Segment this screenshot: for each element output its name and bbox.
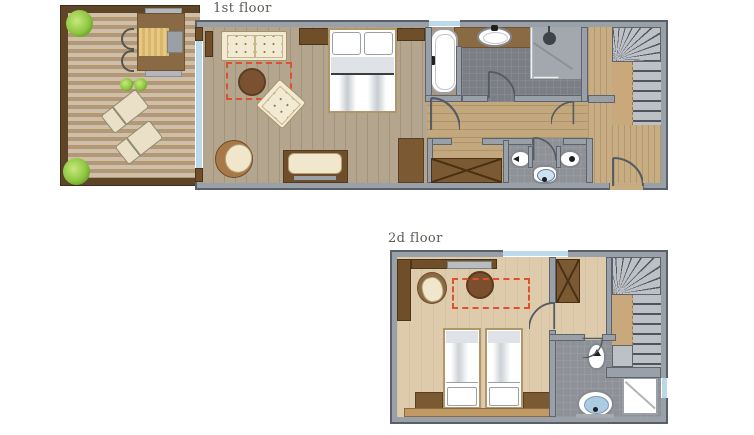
plant-icon: [66, 10, 93, 37]
entry-door: [611, 157, 643, 187]
window-jamb: [195, 27, 203, 41]
shower-glass: [533, 76, 559, 79]
bedroom-door-2f: [529, 302, 556, 330]
bed-duvet: [331, 73, 394, 111]
tv-shelf: [447, 261, 492, 269]
shower-floor: [532, 27, 581, 79]
stairs-straight-flight-2f: [633, 295, 661, 367]
window-jamb: [195, 168, 203, 182]
wall: [462, 95, 488, 102]
corridor-door: [551, 101, 575, 125]
bathroom-door-2f: [582, 337, 603, 358]
wall: [556, 146, 561, 168]
first-floor-label: 1st floor: [213, 1, 272, 16]
bench-cushion: [288, 153, 342, 174]
pillow: [332, 32, 361, 55]
shower-tray-2f: [622, 377, 658, 415]
basin-drain-icon: [593, 407, 598, 412]
bidet-arrow-icon: [513, 156, 519, 162]
wall: [588, 95, 615, 103]
bedroom-shelf-left: [397, 259, 411, 321]
wall: [549, 330, 556, 417]
second-floor-label: 2d floor: [388, 231, 443, 246]
wall: [456, 46, 462, 96]
bed-duvet-2f: [446, 343, 478, 383]
toilet-drain-icon: [569, 156, 575, 162]
coffee-table: [238, 68, 266, 96]
bathroom-door: [487, 71, 515, 99]
bed-sheet: [331, 57, 394, 73]
sofa: [221, 31, 287, 61]
headboard-console-left: [299, 28, 330, 45]
stairs-lower-landing-2f: [612, 345, 633, 367]
wall: [606, 367, 661, 378]
bathroom-window-2f: [661, 378, 668, 398]
closet-wardrobe: [431, 158, 502, 183]
wall: [606, 257, 612, 340]
wc-door: [532, 137, 556, 161]
stairs-winder: [612, 27, 661, 62]
shower-head-icon: [543, 32, 556, 45]
floor-plan-canvas: 1st floor: [0, 0, 754, 435]
bed-duvet-2f: [488, 343, 520, 383]
wardrobe-2f: [556, 259, 580, 303]
stairs-wood-landing: [612, 62, 633, 125]
wall: [503, 140, 509, 183]
table-tray: [167, 31, 183, 53]
bath-mat: [576, 414, 614, 418]
rug-outline-2f: [452, 278, 530, 309]
bed-fold-band: [446, 331, 478, 343]
shower-glass: [530, 27, 533, 79]
plant-icon: [63, 158, 90, 185]
basin-faucet-icon: [491, 25, 498, 31]
pillow: [489, 387, 519, 406]
table-end-cap: [145, 70, 182, 77]
bed-foot-strip: [404, 408, 552, 417]
bathroom-window: [429, 20, 460, 27]
stairs-winder-2f: [612, 257, 661, 295]
wc-basin-drain-icon: [542, 177, 547, 182]
nightstand: [415, 392, 443, 409]
bedroom-window-2f: [503, 250, 568, 257]
headboard-console-right: [397, 28, 425, 41]
wall: [549, 334, 585, 341]
plant-icon: [120, 78, 133, 91]
armchair-2f: [417, 272, 447, 304]
wall: [586, 138, 593, 183]
living-room-door: [429, 97, 460, 131]
bed-fold-band: [488, 331, 520, 343]
wall-console: [205, 31, 213, 57]
nightstand: [523, 392, 550, 409]
stairs-straight-flight: [633, 62, 661, 125]
wall: [602, 334, 616, 341]
bench-rail: [294, 176, 336, 180]
pillow: [364, 32, 393, 55]
living-wardrobe: [398, 138, 424, 183]
wall: [549, 257, 556, 303]
wall: [425, 27, 432, 98]
wall: [581, 27, 588, 102]
table-wood-top: [139, 28, 169, 56]
pillow: [447, 387, 477, 406]
terrace-window: [195, 41, 203, 168]
papasan-chair: [215, 140, 253, 178]
plant-icon: [134, 78, 147, 91]
